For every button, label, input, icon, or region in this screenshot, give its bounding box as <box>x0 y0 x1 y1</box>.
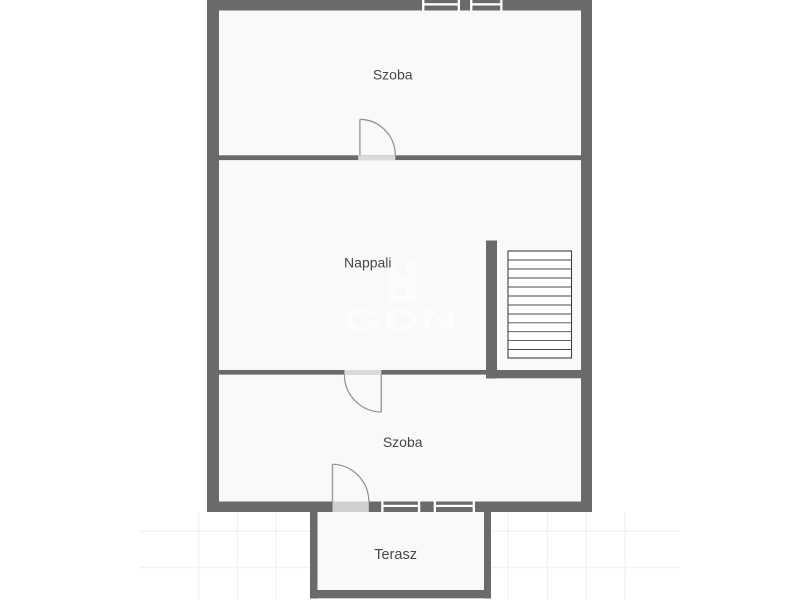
svg-text:Nappali: Nappali <box>344 255 391 271</box>
svg-text:Szoba: Szoba <box>383 434 423 450</box>
svg-text:GDN: GDN <box>343 305 457 337</box>
svg-text:Terasz: Terasz <box>374 547 417 563</box>
svg-text:Szoba: Szoba <box>373 67 413 83</box>
